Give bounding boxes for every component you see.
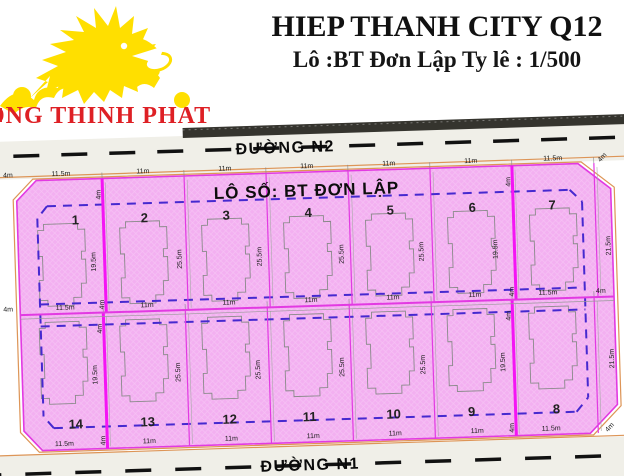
dimension-label: 25.5m [420, 355, 428, 375]
lot-number-3: 3 [222, 208, 230, 223]
dimension-label: 11m [136, 168, 149, 175]
dimension-label: 4m [3, 306, 13, 313]
lot-number-13: 13 [140, 414, 155, 429]
dimension-label: 4m [509, 423, 516, 433]
lot-number-14: 14 [68, 416, 84, 431]
page: LÔ SỐ: BT ĐƠN LẬP123456719.5m25.5m25.5m2… [0, 0, 624, 476]
dimension-label: 21.5m [605, 236, 613, 256]
plan-rotated-group: LÔ SỐ: BT ĐƠN LẬP123456719.5m25.5m25.5m2… [0, 113, 624, 476]
dimension-label: 11m [225, 435, 238, 442]
dimension-label: 4m [505, 177, 512, 187]
dimension-label: 4m [97, 324, 104, 334]
dimension-label: 25.5m [176, 249, 184, 269]
dimension-label: 11.5m [56, 304, 75, 312]
dimension-label: 25.5m [256, 247, 264, 267]
lot-number-9: 9 [468, 404, 476, 419]
dimension-label: 25.5m [255, 360, 263, 380]
dimension-label: 11m [143, 438, 156, 445]
dimension-label: 25.5m [339, 357, 347, 377]
lot-number-8: 8 [553, 401, 561, 416]
dimension-label: 11m [386, 294, 399, 301]
lot-number-12: 12 [222, 411, 237, 426]
dimension-label: 11m [222, 299, 235, 306]
lot-number-5: 5 [386, 202, 394, 217]
dimension-label: 4m [99, 299, 106, 309]
dimension-label: 11m [140, 302, 153, 309]
dimension-label: 11m [382, 160, 395, 167]
lot-number-7: 7 [548, 197, 556, 212]
dimension-label: 11.5m [542, 425, 561, 433]
dimension-label: 25.5m [338, 244, 346, 264]
dimension-label: 19.5m [90, 252, 98, 272]
dimension-label: 19.5m [92, 365, 100, 385]
lot-number-11: 11 [303, 409, 317, 424]
dimension-label: 11m [468, 292, 481, 299]
lot-number-2: 2 [140, 210, 148, 225]
dimension-label: 4m [596, 288, 606, 295]
dimension-label: 11.5m [51, 171, 70, 179]
dimension-label: 11.5m [538, 289, 557, 297]
dimension-label: 11m [307, 433, 320, 440]
dimension-label: 11m [300, 163, 313, 170]
dimension-label: 25.5m [175, 362, 183, 382]
lot-number-4: 4 [304, 205, 312, 220]
dimension-label: 4m [95, 190, 102, 200]
dimension-label: 4m [509, 287, 516, 297]
dimension-label: 11m [218, 165, 231, 172]
dimension-label: 4m [505, 311, 512, 321]
lot-number-6: 6 [468, 200, 476, 215]
dimension-label: 19.5m [492, 239, 500, 259]
dimension-label: 11m [389, 430, 402, 437]
dimension-label: 11m [471, 428, 484, 435]
dimension-label: 4m [604, 422, 616, 434]
site-plan: LÔ SỐ: BT ĐƠN LẬP123456719.5m25.5m25.5m2… [0, 0, 624, 476]
dimension-label: 21.5m [609, 349, 617, 369]
dimension-label: 11.5m [543, 155, 562, 163]
dimension-label: 4m [3, 172, 13, 179]
dimension-label: 4m [100, 435, 107, 445]
dimension-label: 11m [464, 158, 477, 165]
dimension-label: 11.5m [55, 441, 74, 449]
dimension-label: 25.5m [418, 242, 426, 262]
lot-number-1: 1 [72, 212, 80, 227]
dimension-label: 11m [304, 297, 317, 304]
lot-number-10: 10 [386, 406, 401, 421]
dimension-label: 19.5m [500, 352, 508, 372]
